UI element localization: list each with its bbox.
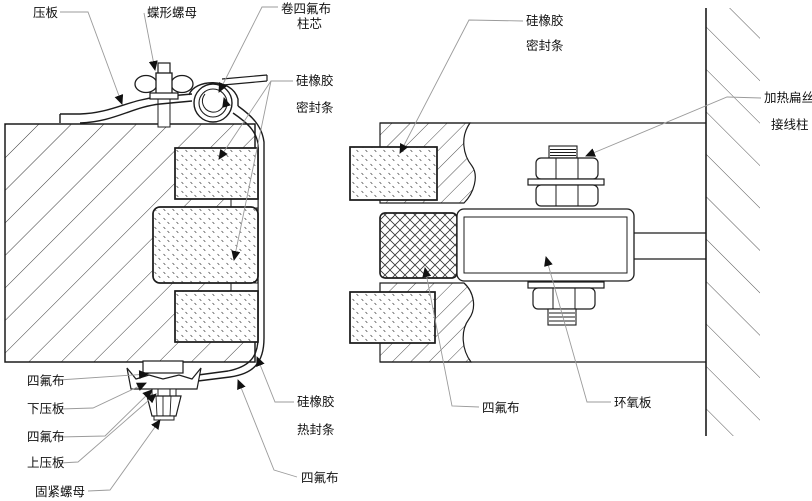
label-rolled-ptfe-core-l1: 卷四氟布 [281, 1, 331, 16]
label-ptfe-cloth-wrap: 四氟布 [301, 470, 339, 485]
right-seal-pad-top [350, 147, 437, 200]
hex-nut-top-2 [536, 185, 598, 206]
diagram-svg: 压板 蝶形螺母 卷四氟布 柱芯 硅橡胶 密封条 硅橡胶 密封条 加热扁丝 接线柱… [0, 0, 812, 501]
wall [706, 8, 760, 436]
label-silicone-seal-right-l2: 密封条 [526, 38, 564, 53]
right-seal-pad-bottom [350, 292, 435, 343]
label-silicone-seal-left-l2: 密封条 [296, 100, 334, 115]
wing-nut-right-wing [171, 76, 193, 93]
leader-pressure-plate [60, 12, 122, 104]
label-silicone-heat-seal-l2: 热封条 [297, 422, 335, 437]
epoxy-board-outer [457, 209, 634, 281]
bolt-shaft [152, 389, 176, 396]
right-section-view [350, 8, 760, 436]
epoxy-board-assembly [457, 209, 706, 281]
label-silicone-seal-right-l1: 硅橡胶 [526, 13, 564, 28]
label-heating-flat-wire: 加热扁丝 [764, 90, 812, 105]
label-rolled-ptfe-core-l2: 柱芯 [297, 16, 322, 31]
leader-rolled-ptfe-core [219, 7, 278, 92]
leader-upper-pressure-plate [60, 394, 156, 463]
fastening-nut-cap [154, 416, 174, 420]
rolled-ptfe-core [189, 75, 267, 122]
fastening-nut-body [147, 396, 181, 416]
leader-ptfe-cloth-bolt [59, 390, 152, 437]
wall-mount-tab [634, 233, 706, 259]
label-terminal-post: 接线柱 [771, 117, 809, 132]
technical-diagram: 压板 蝶形螺母 卷四氟布 柱芯 硅橡胶 密封条 硅橡胶 密封条 加热扁丝 接线柱… [0, 0, 812, 501]
label-silicone-seal-left-l1: 硅橡胶 [296, 73, 334, 88]
label-silicone-heat-seal-l1: 硅橡胶 [297, 394, 335, 409]
washer-bottom [528, 282, 604, 288]
terminal-stack-bottom [528, 282, 604, 325]
wall-hatch-band [706, 8, 760, 436]
leader-fastening-nut [88, 420, 160, 491]
leader-silicone-heat-seal [257, 357, 294, 402]
label-ptfe-cloth-right: 四氟布 [482, 400, 520, 415]
coil-outer-circle [194, 84, 232, 122]
wing-nut-body [156, 73, 172, 95]
hex-nut-bottom [533, 288, 595, 309]
leader-ptfe-cloth-wrap [238, 380, 297, 477]
label-upper-pressure-plate: 上压板 [27, 455, 65, 470]
wing-nut-left-wing [135, 76, 157, 93]
bottom-clamp-assembly [127, 361, 201, 420]
wing-nut [135, 63, 193, 99]
label-ptfe-cloth-under-block: 四氟布 [27, 373, 65, 388]
wrap-tail [222, 75, 267, 85]
seal-pad-top [175, 148, 258, 199]
ptfe-cloth-block [380, 213, 457, 278]
label-pressure-plate: 压板 [33, 5, 59, 20]
seal-pad-bottom [175, 291, 258, 342]
washer-top [528, 179, 604, 185]
hex-nut-top-1 [536, 158, 598, 179]
label-ptfe-cloth-bolt: 四氟布 [27, 429, 65, 444]
clamp-pad [143, 361, 183, 373]
terminal-stack-top [528, 146, 604, 206]
label-wing-nut: 蝶形螺母 [147, 5, 197, 20]
label-epoxy-board: 环氧板 [614, 395, 652, 410]
left-section-view [5, 63, 267, 420]
leader-wing-nut [144, 13, 155, 70]
wing-nut-base [150, 93, 178, 99]
label-fastening-nut: 固紧螺母 [35, 484, 85, 499]
terminal-post-top [549, 146, 577, 158]
label-lower-pressure-plate: 下压板 [27, 401, 65, 416]
